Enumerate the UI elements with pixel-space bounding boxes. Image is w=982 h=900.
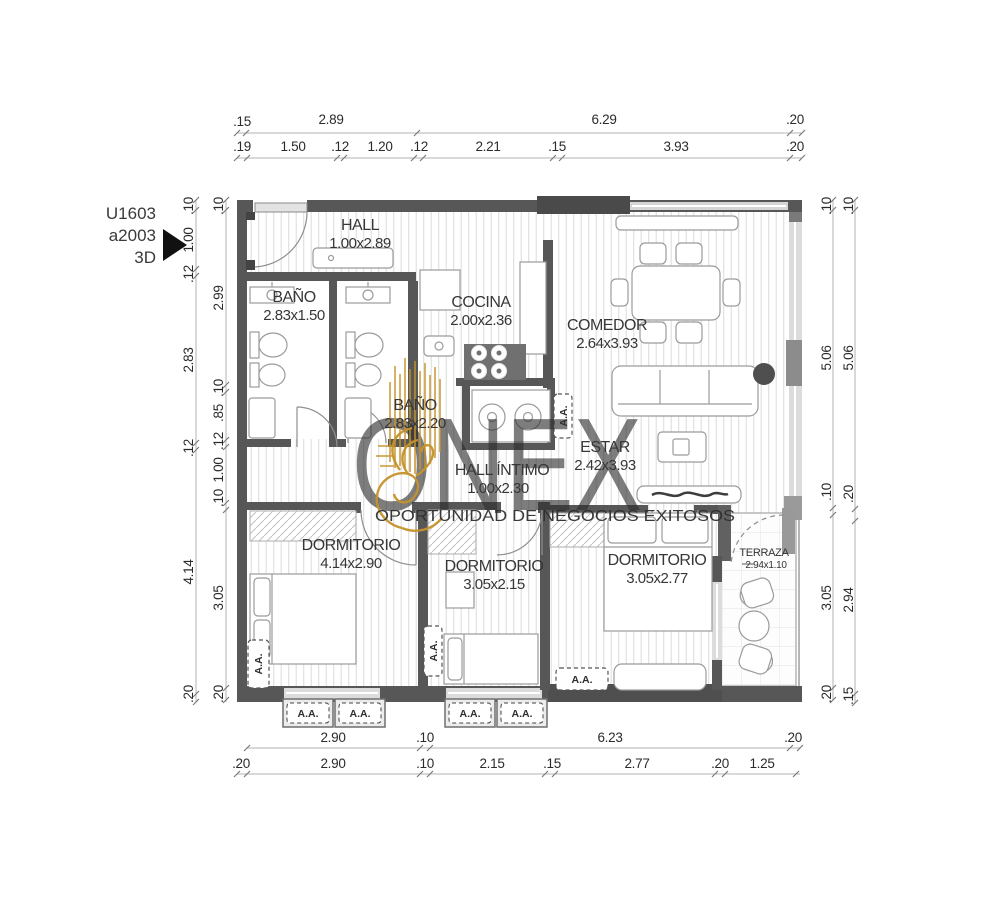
dim-right-outer-0: .10 bbox=[841, 197, 856, 215]
dorm3-name: DORMITORIO bbox=[608, 552, 707, 569]
comedor-size: 2.64x3.93 bbox=[576, 335, 638, 352]
floor-plan-drawing: ONEX OPORTUNIDAD DE NEGOCIOS EXITOSOS HA… bbox=[0, 0, 982, 900]
hall-size: 1.00x2.89 bbox=[329, 235, 391, 252]
aa-label-dorm2: A.A. bbox=[428, 640, 440, 661]
dim-bottom1-1: .10 bbox=[416, 730, 434, 745]
dim-left-inner-8: .20 bbox=[211, 685, 226, 703]
dim-top1-0: .15 bbox=[233, 114, 251, 129]
hall-intimo-name: HALL ÍNTIMO bbox=[455, 460, 549, 479]
dim-top2-2: .12 bbox=[331, 139, 349, 154]
dim-left-inner-6: .10 bbox=[211, 489, 226, 507]
aa-label-ext-3: A.A. bbox=[460, 708, 481, 720]
terraza-table bbox=[739, 611, 769, 641]
terraza-name: TERRAZA bbox=[739, 547, 789, 559]
dim-left-inner-1: 2.99 bbox=[211, 285, 226, 310]
aa-label-dorm3: A.A. bbox=[572, 674, 593, 686]
estar-size: 2.42x3.93 bbox=[574, 457, 636, 474]
dim-bottom2-7: 1.25 bbox=[749, 756, 774, 771]
aa-label-ext-1: A.A. bbox=[298, 708, 319, 720]
aa-label-ext-4: A.A. bbox=[512, 708, 533, 720]
dim-top2-6: .15 bbox=[548, 139, 566, 154]
dorm3-size: 3.05x2.77 bbox=[626, 570, 688, 587]
dim-right-inner-2: .10 bbox=[819, 483, 834, 501]
sideboard bbox=[616, 216, 738, 230]
dim-bottom2-3: 2.15 bbox=[479, 756, 504, 771]
dim-left-outer-4: .12 bbox=[181, 439, 196, 457]
dorm1-size: 4.14x2.90 bbox=[320, 555, 382, 572]
dim-bottom2-1: 2.90 bbox=[320, 756, 345, 771]
dim-bottom2-0: .20 bbox=[232, 756, 250, 771]
dim-top2-3: 1.20 bbox=[367, 139, 392, 154]
dim-left-inner-4: .12 bbox=[211, 432, 226, 450]
unit-label: U1603 a2003 3D bbox=[106, 204, 187, 267]
dim-bottom2-4: .15 bbox=[543, 756, 561, 771]
dim-left-outer-1: 1.00 bbox=[181, 227, 196, 252]
dim-bottom2-2: .10 bbox=[416, 756, 434, 771]
dim-left-inner-0: .10 bbox=[211, 197, 226, 215]
dim-bottom1-2: 6.23 bbox=[597, 730, 622, 745]
dim-left-inner-2: .10 bbox=[211, 379, 226, 397]
comedor-name: COMEDOR bbox=[567, 317, 647, 334]
kitchen-counter bbox=[520, 262, 546, 354]
cocina-name: COCINA bbox=[451, 294, 511, 311]
dim-bottom2-6: .20 bbox=[711, 756, 729, 771]
bano1-name: BAÑO bbox=[272, 286, 315, 306]
bano2-name: BAÑO bbox=[393, 394, 436, 414]
dim-top1-3: .20 bbox=[786, 112, 804, 127]
dim-top1-2: 6.29 bbox=[591, 112, 616, 127]
dim-bottom1-3: .20 bbox=[784, 730, 802, 745]
hall-intimo-size: 1.00x2.30 bbox=[467, 480, 529, 497]
bano1-size: 2.83x1.50 bbox=[263, 307, 325, 324]
dim-left-inner-7: 3.05 bbox=[211, 585, 226, 610]
unit-line2: a2003 bbox=[109, 226, 156, 245]
unit-line1: U1603 bbox=[106, 204, 156, 223]
aa-label-dorm1: A.A. bbox=[253, 653, 265, 674]
dorm3-bench bbox=[614, 664, 706, 690]
entry-door-leaf bbox=[255, 203, 307, 212]
floor-plan-page: ONEX OPORTUNIDAD DE NEGOCIOS EXITOSOS HA… bbox=[0, 0, 982, 900]
dim-top1-1: 2.89 bbox=[318, 112, 343, 127]
dim-bottom2-5: 2.77 bbox=[624, 756, 649, 771]
dim-right-inner-3: 3.05 bbox=[819, 585, 834, 610]
bano2-size: 2.83x2.20 bbox=[384, 415, 446, 432]
dim-top2-1: 1.50 bbox=[280, 139, 305, 154]
dining-table bbox=[632, 266, 720, 320]
unit-line3: 3D bbox=[134, 248, 156, 267]
terraza-size: 2.94x1.10 bbox=[745, 560, 787, 571]
dim-left-outer-0: .10 bbox=[181, 197, 196, 215]
dim-right-outer-2: .20 bbox=[841, 485, 856, 503]
tv-table bbox=[658, 432, 706, 462]
dim-left-outer-6: .20 bbox=[181, 685, 196, 703]
dim-top2-4: .12 bbox=[410, 139, 428, 154]
dim-bottom1-0: 2.90 bbox=[320, 730, 345, 745]
dim-right-inner-4: .20 bbox=[819, 685, 834, 703]
dim-left-inner-5: 1.00 bbox=[211, 457, 226, 482]
dim-left-inner-3: .85 bbox=[211, 404, 226, 422]
dim-right-inner-1: 5.06 bbox=[819, 345, 834, 370]
ac-units-exterior bbox=[283, 699, 547, 727]
dim-left-outer-3: 2.83 bbox=[181, 347, 196, 372]
aa-label-ext-2: A.A. bbox=[350, 708, 371, 720]
dorm1-name: DORMITORIO bbox=[302, 537, 401, 554]
kitchen-sink bbox=[424, 336, 454, 356]
dim-top2-0: .19 bbox=[233, 139, 251, 154]
estar-name: ESTAR bbox=[580, 439, 630, 456]
cocina-size: 2.00x2.36 bbox=[450, 312, 512, 329]
dim-top2-5: 2.21 bbox=[475, 139, 500, 154]
hall-name: HALL bbox=[341, 217, 380, 234]
aa-label-laundry: A.A. bbox=[558, 405, 570, 426]
dim-right-outer-1: 5.06 bbox=[841, 345, 856, 370]
dim-left-outer-2: .12 bbox=[181, 265, 196, 283]
dorm2-size: 3.05x2.15 bbox=[463, 576, 525, 593]
dim-right-outer-4: .15 bbox=[841, 687, 856, 705]
dim-top2-7: 3.93 bbox=[663, 139, 688, 154]
dim-top2-8: .20 bbox=[786, 139, 804, 154]
dim-right-outer-3: 2.94 bbox=[841, 587, 856, 613]
dim-left-outer-5: 4.14 bbox=[181, 559, 196, 585]
dim-right-inner-0: .10 bbox=[819, 197, 834, 215]
column-dot bbox=[753, 363, 775, 385]
dorm2-name: DORMITORIO bbox=[445, 558, 544, 575]
top-wall-column bbox=[537, 196, 630, 214]
watermark-tagline: OPORTUNIDAD DE NEGOCIOS EXITOSOS bbox=[375, 508, 735, 525]
